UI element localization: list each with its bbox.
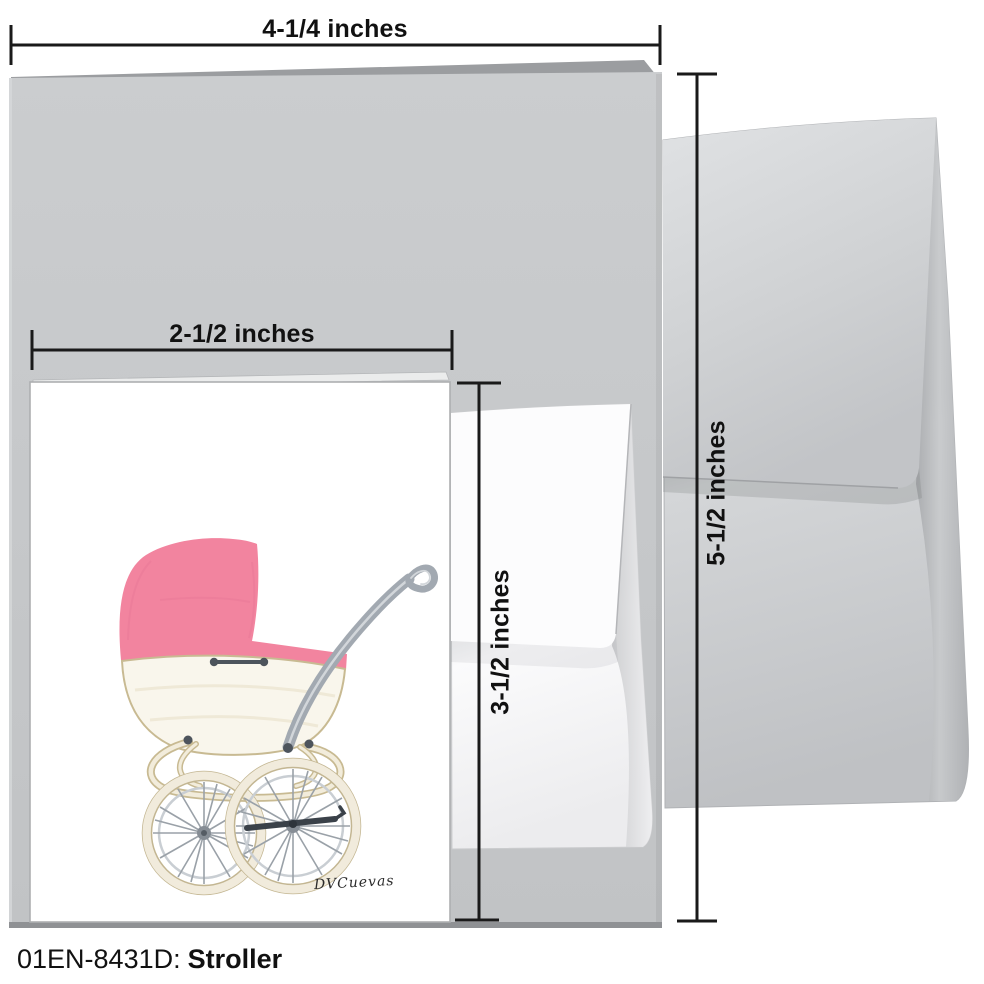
- stroller-body-handle-knob-left: [210, 658, 218, 666]
- card-height-label: 5-1/2 inches: [703, 420, 732, 566]
- caption-product-code: 01EN-8431D:: [17, 944, 181, 974]
- card-width-label: 4-1/4 inches: [262, 15, 408, 44]
- caption: 01EN-8431D:Stroller: [17, 944, 282, 975]
- folded-card-bottom-edge: [9, 922, 662, 928]
- insert-height-label: 3-1/2 inches: [487, 569, 516, 715]
- caption-product-title: Stroller: [188, 944, 283, 974]
- stroller-body-handle-knob-right: [260, 658, 268, 666]
- folded-card-left-highlight: [9, 78, 12, 922]
- small-envelope: [451, 404, 652, 849]
- scene-graphic: [0, 0, 984, 984]
- insert-width-label: 2-1/2 inches: [169, 320, 315, 349]
- product-dimension-diagram: 4-1/4 inches 2-1/2 inches 5-1/2 inches 3…: [0, 0, 984, 984]
- folded-card-right-shade: [656, 74, 662, 922]
